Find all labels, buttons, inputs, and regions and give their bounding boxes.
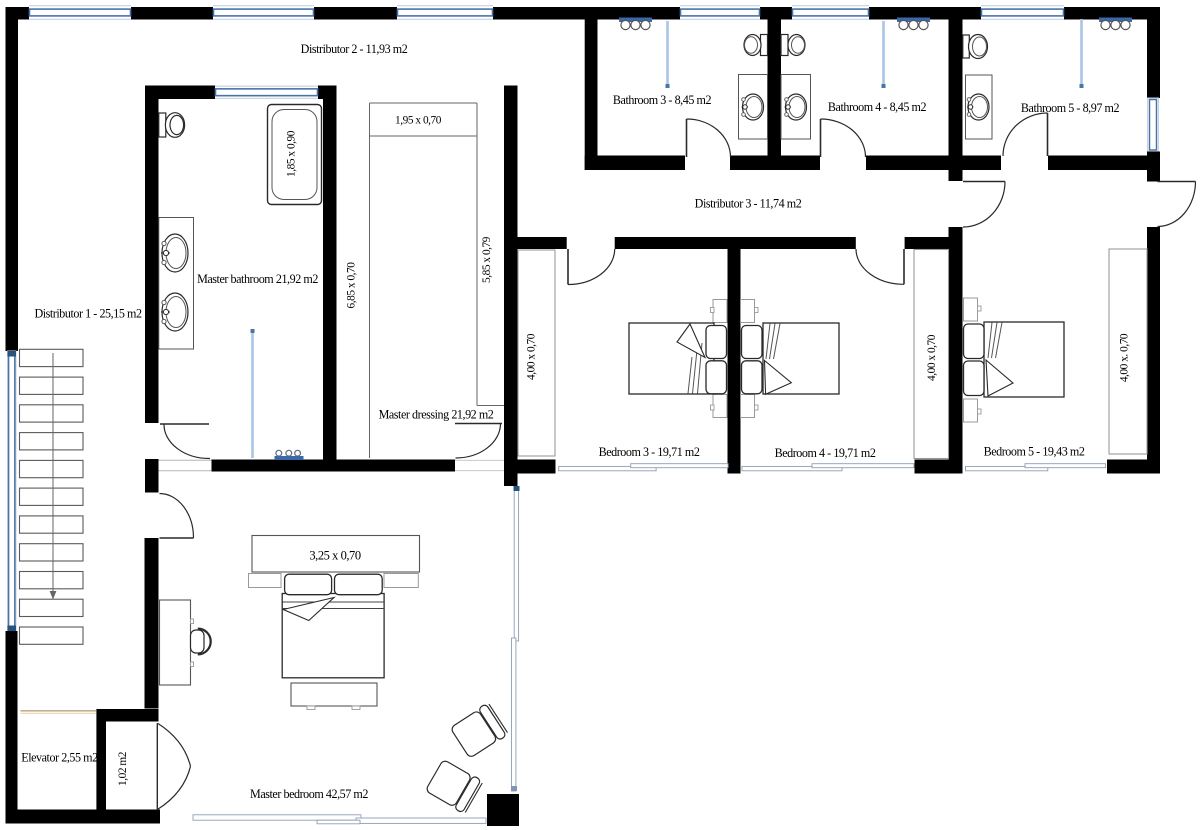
svg-text:4,00 x 0,70: 4,00 x 0,70 [926,334,938,381]
svg-text:Distributor 2 - 11,93 m2: Distributor 2 - 11,93 m2 [301,42,408,56]
svg-text:Bathroom 3 - 8,45 m2: Bathroom 3 - 8,45 m2 [613,93,712,107]
svg-text:Bedroom 3 - 19,71 m2: Bedroom 3 - 19,71 m2 [599,445,700,459]
svg-text:5,85 x 0,79: 5,85 x 0,79 [481,236,493,283]
svg-text:Bathroom 4 - 8,45 m2: Bathroom 4 - 8,45 m2 [828,100,927,114]
svg-text:Master bathroom 21,92 m2: Master bathroom 21,92 m2 [197,272,318,286]
svg-text:Master bedroom 42,57 m2: Master bedroom 42,57 m2 [250,787,368,801]
svg-text:Elevator 2,55 m2: Elevator 2,55 m2 [21,751,98,765]
svg-text:6,85 x 0,70: 6,85 x 0,70 [346,262,358,309]
svg-text:Bedroom 4 - 19,71 m2: Bedroom 4 - 19,71 m2 [775,446,876,460]
svg-text:Bedroom 5 - 19,43 m2: Bedroom 5 - 19,43 m2 [984,445,1085,459]
svg-text:Bathroom 5 - 8,97 m2: Bathroom 5 - 8,97 m2 [1021,101,1120,115]
svg-text:Distributor 3 - 11,74 m2: Distributor 3 - 11,74 m2 [695,197,802,211]
svg-text:4,00 x 0,70: 4,00 x 0,70 [526,333,538,380]
svg-text:Master dressing 21,92 m2: Master dressing 21,92 m2 [379,408,494,422]
svg-text:4,00 x. 0,70: 4,00 x. 0,70 [1119,333,1131,382]
svg-text:1,95 x 0,70: 1,95 x 0,70 [395,115,442,127]
svg-text:1,85 x 0,90: 1,85 x 0,90 [286,130,298,177]
svg-text:Distributor 1 - 25,15 m2: Distributor 1 - 25,15 m2 [34,307,142,321]
svg-text:1,02 m2: 1,02 m2 [117,751,129,786]
svg-text:3,25 x 0,70: 3,25 x 0,70 [309,549,361,563]
